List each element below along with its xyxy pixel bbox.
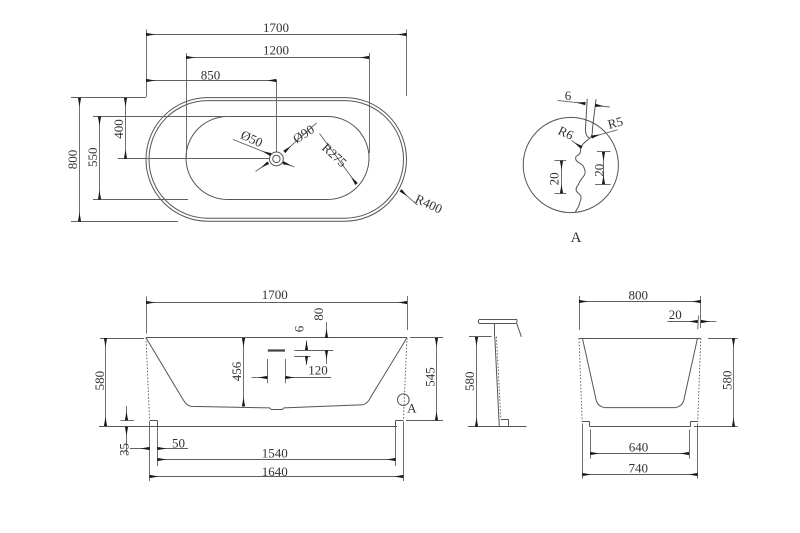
- svg-text:580: 580: [92, 371, 107, 391]
- svg-text:1700: 1700: [262, 287, 288, 302]
- svg-text:20: 20: [669, 307, 682, 322]
- svg-text:400: 400: [111, 119, 126, 138]
- svg-text:20: 20: [591, 164, 606, 177]
- svg-text:580: 580: [719, 370, 734, 390]
- svg-text:1200: 1200: [263, 43, 289, 58]
- svg-text:80: 80: [311, 308, 326, 321]
- svg-text:R5: R5: [606, 114, 625, 132]
- svg-text:800: 800: [65, 150, 80, 170]
- svg-text:R6: R6: [556, 123, 577, 143]
- svg-text:Ø50: Ø50: [239, 127, 266, 150]
- svg-text:580: 580: [462, 372, 477, 392]
- svg-text:R275: R275: [319, 140, 350, 170]
- svg-text:120: 120: [308, 363, 328, 378]
- svg-text:50: 50: [172, 435, 185, 450]
- svg-text:850: 850: [201, 67, 221, 82]
- svg-text:1640: 1640: [262, 464, 288, 479]
- svg-text:R400: R400: [413, 191, 445, 217]
- svg-text:550: 550: [85, 147, 100, 167]
- svg-text:1700: 1700: [263, 20, 289, 35]
- svg-text:6: 6: [565, 88, 572, 103]
- svg-text:640: 640: [629, 440, 649, 455]
- svg-text:740: 740: [628, 461, 648, 476]
- svg-text:A: A: [571, 230, 582, 246]
- svg-text:A: A: [407, 401, 417, 416]
- svg-text:6: 6: [292, 325, 307, 332]
- svg-text:545: 545: [422, 367, 437, 387]
- svg-text:456: 456: [229, 361, 244, 381]
- svg-text:35: 35: [117, 443, 132, 456]
- svg-text:20: 20: [546, 172, 561, 185]
- svg-text:1540: 1540: [262, 446, 288, 461]
- svg-text:800: 800: [628, 287, 648, 302]
